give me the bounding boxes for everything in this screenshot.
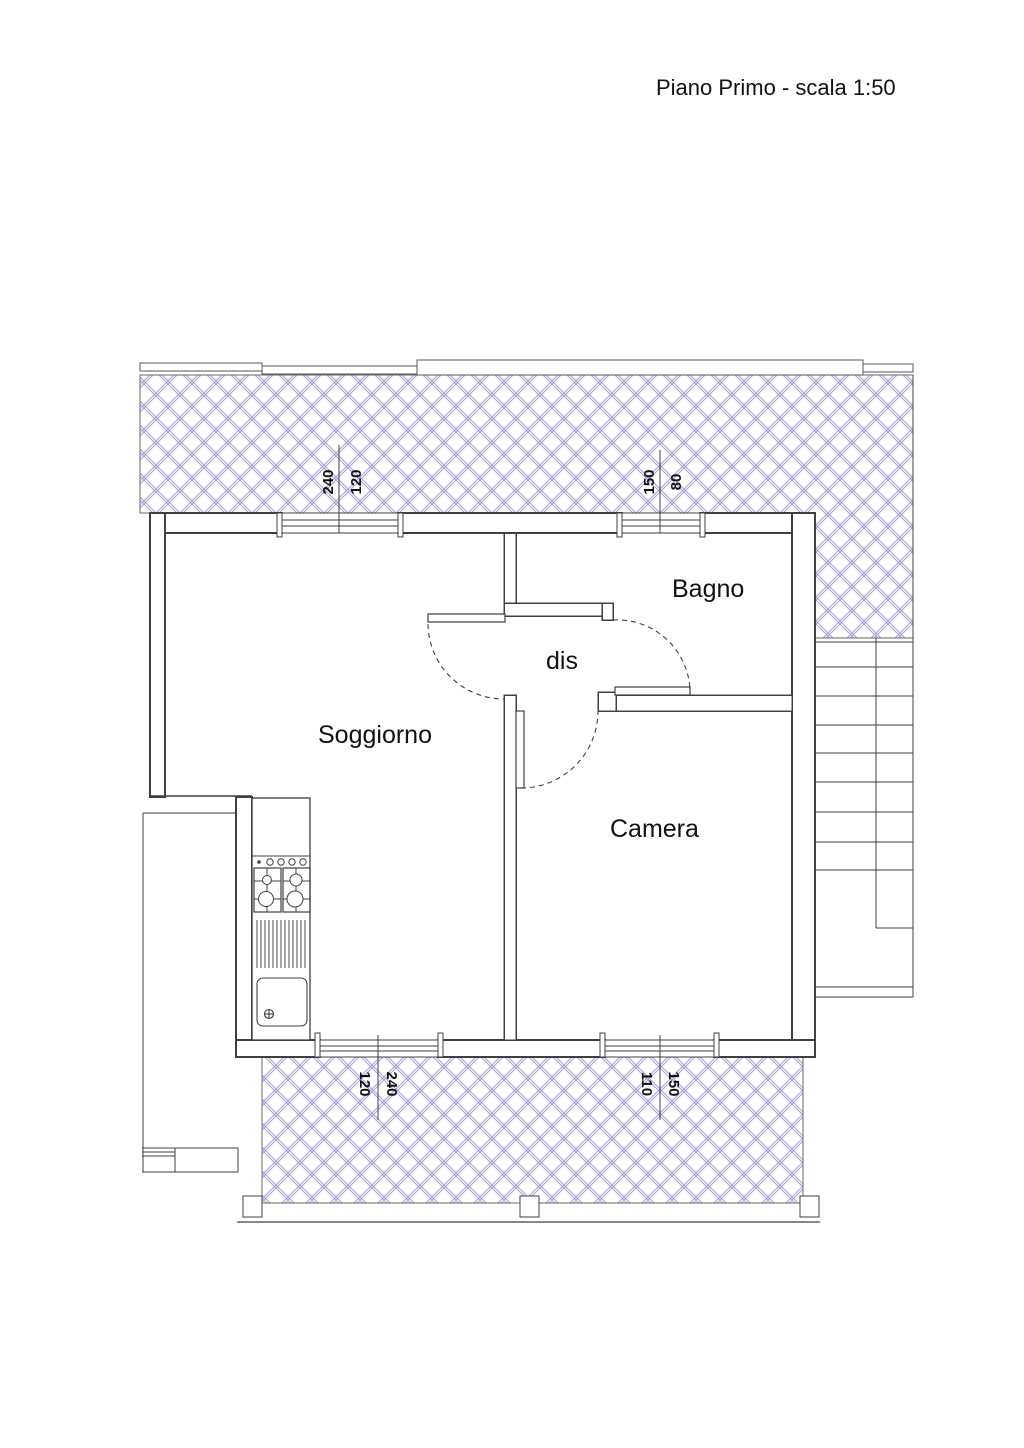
bottom-wall-left bbox=[236, 1040, 320, 1057]
window-top-right bbox=[617, 513, 705, 537]
left-wall-upper bbox=[150, 513, 165, 797]
dim-top-right-first: 150 bbox=[641, 469, 658, 494]
interior-walls bbox=[504, 533, 792, 1040]
bagno-bottom-wall bbox=[504, 603, 602, 616]
kitchen-unit bbox=[252, 798, 310, 1040]
bottom-terrace-hatch bbox=[262, 1057, 803, 1203]
wall-pier bbox=[175, 1148, 238, 1172]
window-top-left bbox=[277, 513, 403, 537]
kitchen-sink bbox=[257, 978, 307, 1026]
right-wall bbox=[792, 513, 815, 1057]
top-wall-middle bbox=[398, 513, 622, 533]
room-label-soggiorno: Soggiorno bbox=[318, 721, 432, 749]
dim-top-right-second: 80 bbox=[668, 474, 685, 491]
dim-top-left-first: 240 bbox=[320, 469, 337, 494]
dim-bottom-left-second: 240 bbox=[383, 1071, 400, 1096]
bagno-door-jamb-bottom bbox=[598, 692, 616, 711]
top-wall-left bbox=[150, 513, 282, 533]
door-camera bbox=[516, 711, 598, 788]
bagno-door-jamb-top bbox=[602, 603, 613, 620]
plan-title: Piano Primo - scala 1:50 bbox=[656, 75, 896, 100]
door-camera-swing-arc bbox=[521, 712, 598, 788]
dim-bottom-right-first: 110 bbox=[638, 1072, 655, 1096]
door-soggiorno bbox=[428, 614, 505, 699]
dim-bottom-right-second: 150 bbox=[665, 1071, 682, 1096]
central-wall-lower bbox=[504, 695, 516, 1040]
bottom-wall-middle bbox=[438, 1040, 605, 1057]
windows bbox=[277, 513, 719, 1057]
room-label-camera: Camera bbox=[610, 815, 699, 843]
room-label-dis: dis bbox=[546, 647, 578, 675]
dimension-ticks bbox=[339, 445, 660, 1120]
window-bottom-left bbox=[315, 1033, 443, 1057]
camera-top-wall bbox=[598, 695, 792, 711]
door-soggiorno-swing-arc bbox=[428, 624, 504, 699]
floor-plan-drawing: Piano Primo - scala 1:50 Bagno dis Soggi… bbox=[0, 0, 1024, 1448]
door-bagno bbox=[613, 620, 690, 695]
room-label-bagno: Bagno bbox=[672, 575, 744, 603]
door-bagno-swing-arc bbox=[613, 620, 690, 690]
left-wall-lower bbox=[236, 797, 252, 1057]
terrace-post-middle bbox=[520, 1196, 539, 1217]
floor-plan-page: Piano Primo - scala 1:50 Bagno dis Soggi… bbox=[0, 0, 1024, 1448]
dim-bottom-left-first: 120 bbox=[356, 1071, 373, 1096]
top-parapet bbox=[140, 360, 913, 375]
dim-top-left-second: 120 bbox=[348, 469, 365, 494]
bottom-left-boundary bbox=[142, 813, 238, 1172]
terrace-post-left bbox=[243, 1196, 262, 1217]
bottom-wall-right bbox=[714, 1040, 815, 1057]
terrace-post-right bbox=[800, 1196, 819, 1217]
